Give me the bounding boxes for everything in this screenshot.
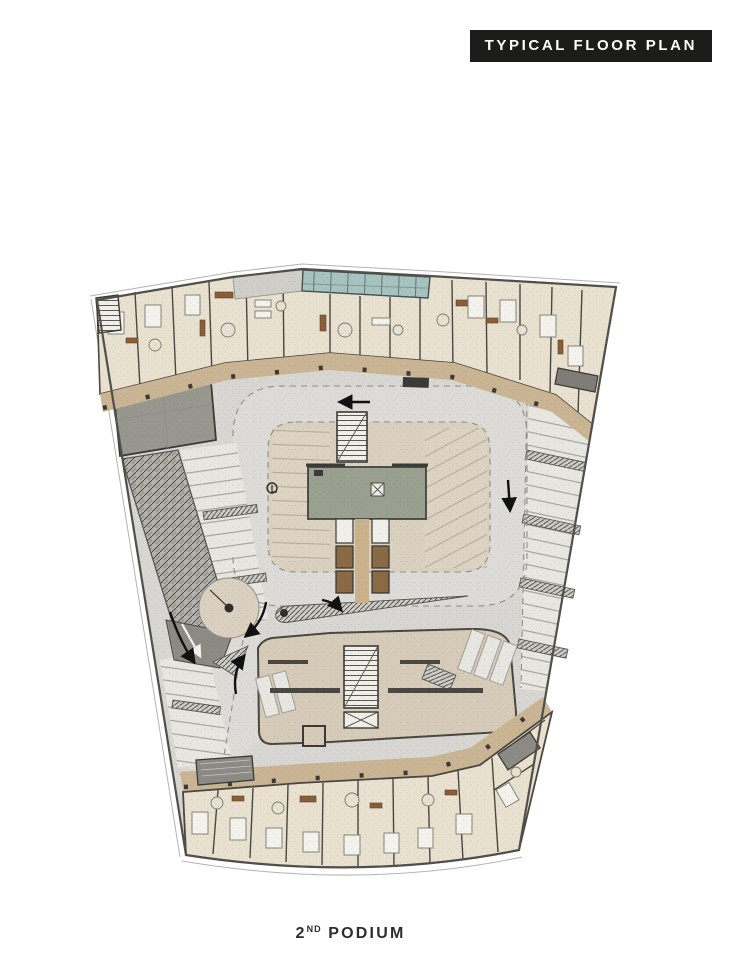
caption-number: 2 (296, 925, 307, 942)
caption-word: PODIUM (328, 925, 405, 942)
caption-ordinal: ND (307, 924, 322, 934)
page: TYPICAL FLOOR PLAN (0, 0, 745, 955)
floor-plan-drawing (0, 0, 745, 955)
floor-texture (97, 269, 616, 867)
caption: 2ND PODIUM (0, 924, 723, 943)
